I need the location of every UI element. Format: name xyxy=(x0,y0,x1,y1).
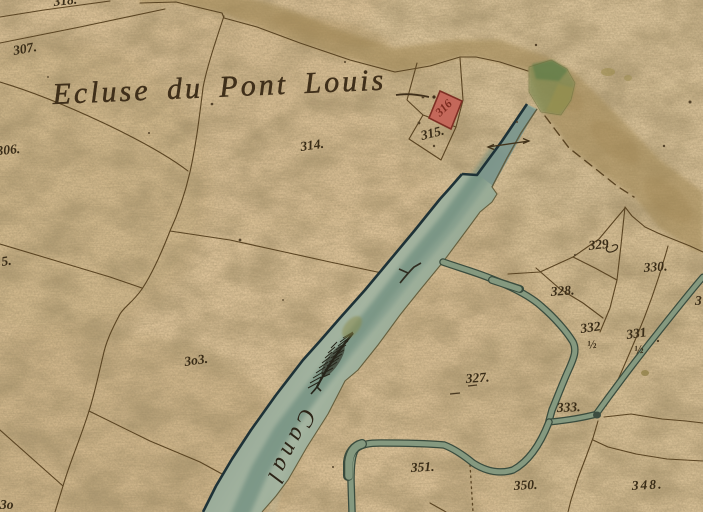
svg-text:333.: 333. xyxy=(556,399,581,415)
svg-text:5.: 5. xyxy=(0,253,12,269)
svg-text:328.: 328. xyxy=(549,282,575,299)
svg-text:350.: 350. xyxy=(512,477,537,493)
svg-text:330.: 330. xyxy=(642,258,668,275)
svg-text:348.: 348. xyxy=(630,476,663,493)
svg-text:3o: 3o xyxy=(0,497,14,512)
svg-text:327.: 327. xyxy=(464,369,490,386)
svg-text:331: 331 xyxy=(624,324,647,342)
svg-text:351.: 351. xyxy=(409,459,434,475)
svg-text:332: 332 xyxy=(578,318,601,336)
svg-text:3: 3 xyxy=(694,293,702,308)
svg-text:306.: 306. xyxy=(0,141,21,158)
